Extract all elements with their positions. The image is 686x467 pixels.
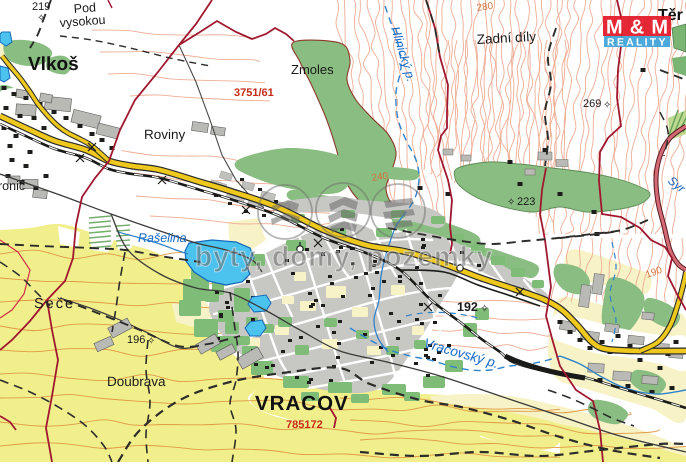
svg-text:196: 196 [127, 334, 145, 346]
svg-text:VRACOV: VRACOV [255, 392, 349, 415]
svg-text:M&M: M&M [606, 17, 668, 39]
svg-text:Zadní díly: Zadní díly [476, 29, 536, 47]
svg-text:192: 192 [457, 300, 478, 314]
svg-text:✧: ✧ [603, 100, 611, 111]
svg-text:Roviny: Roviny [144, 127, 186, 142]
svg-text:Rašelina: Rašelina [138, 231, 187, 245]
svg-text:Vlkoš: Vlkoš [28, 54, 79, 75]
svg-text:219: 219 [32, 1, 50, 13]
svg-text:✧: ✧ [147, 336, 155, 347]
svg-text:✧: ✧ [37, 13, 45, 24]
svg-text:223: 223 [517, 196, 535, 208]
svg-text:REALITY: REALITY [607, 37, 667, 49]
svg-text:3751/61: 3751/61 [234, 87, 274, 99]
svg-text:byty, domy, pozemky: byty, domy, pozemky [195, 241, 493, 272]
svg-text:269: 269 [583, 98, 601, 110]
svg-text:ronic: ronic [0, 179, 25, 193]
svg-text:Zmoles: Zmoles [291, 62, 334, 77]
svg-text:785172: 785172 [286, 419, 323, 431]
svg-text:Doubrava: Doubrava [107, 374, 166, 389]
svg-text:✧: ✧ [507, 197, 515, 208]
svg-text:Seče: Seče [34, 296, 75, 312]
svg-text:✧: ✧ [480, 303, 489, 315]
